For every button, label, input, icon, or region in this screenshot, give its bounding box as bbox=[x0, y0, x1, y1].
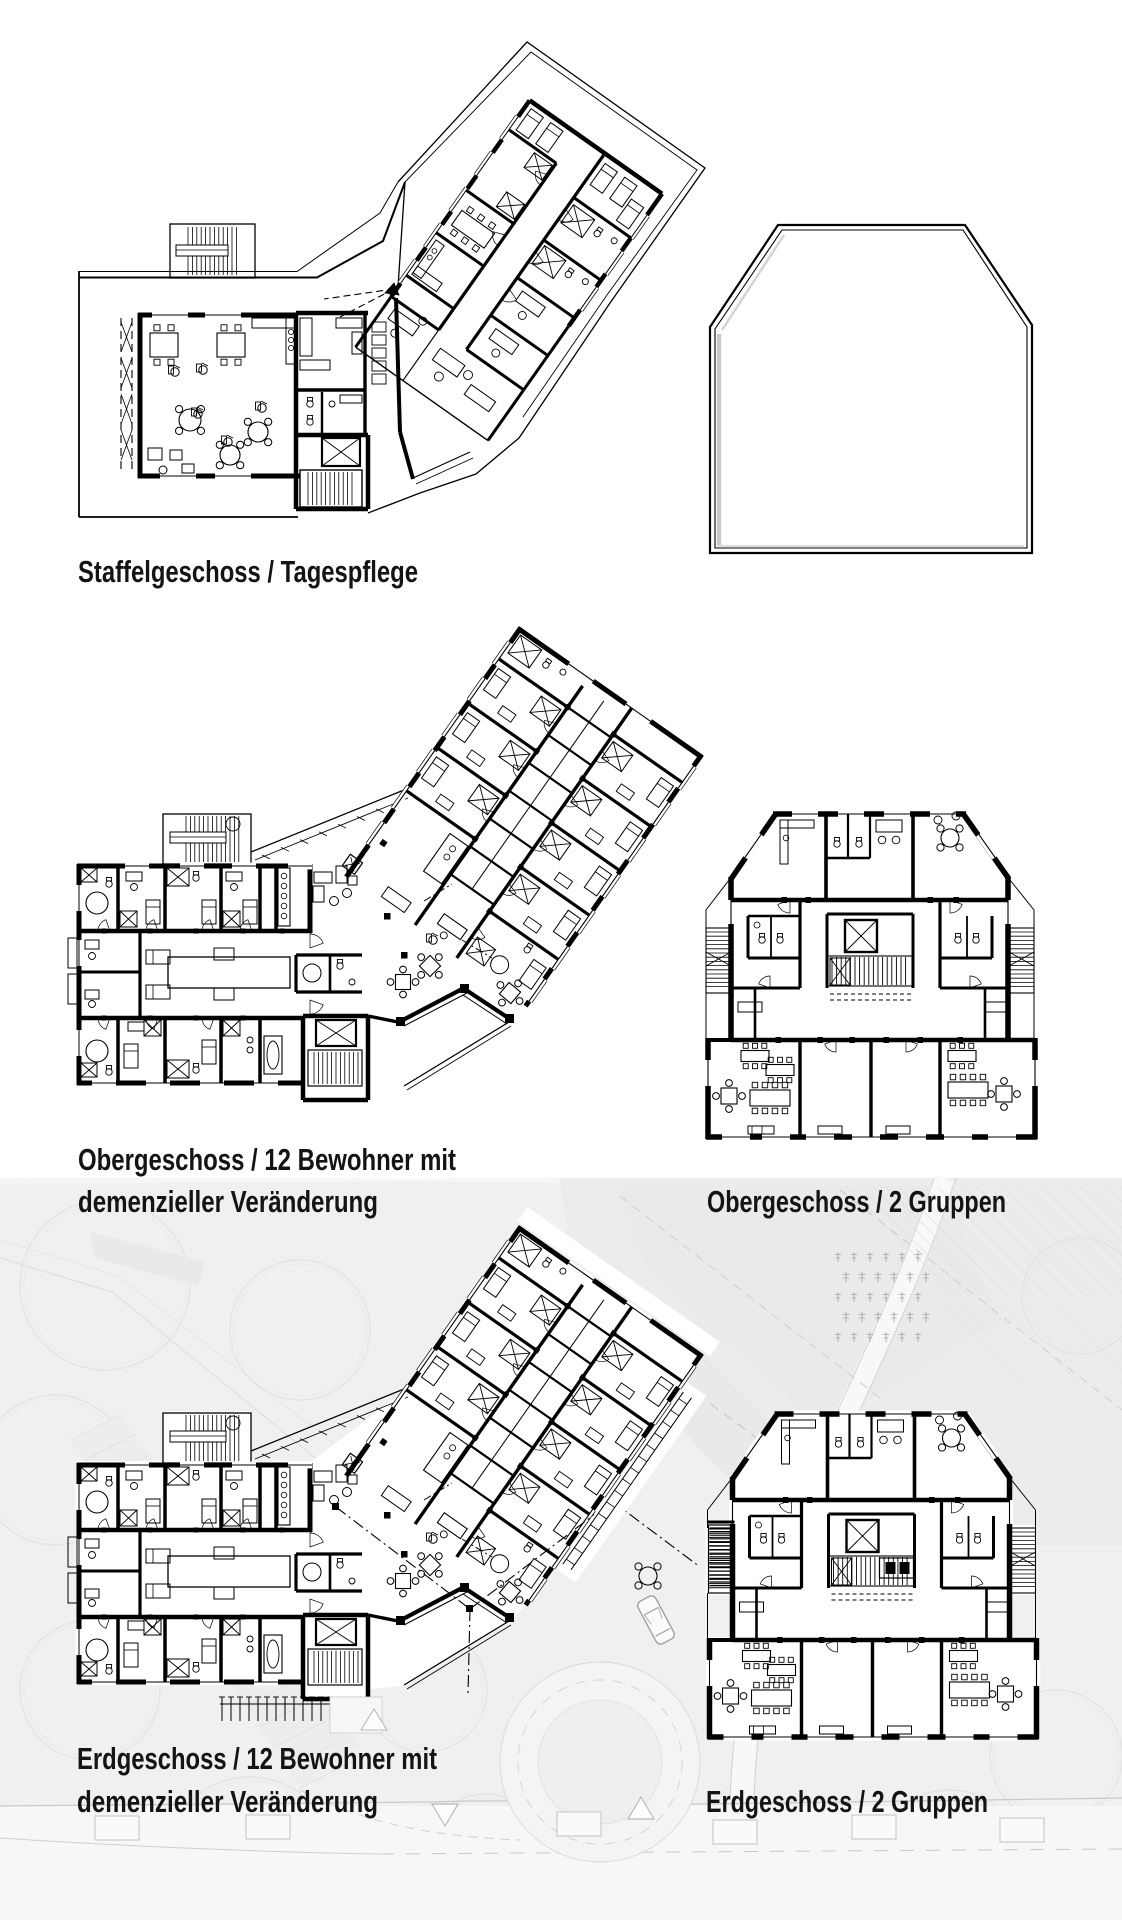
svg-text:Obergeschoss / 12 Bewohner mit: Obergeschoss / 12 Bewohner mit bbox=[78, 1142, 456, 1177]
svg-text:Erdgeschoss / 12 Bewohner mit: Erdgeschoss / 12 Bewohner mit bbox=[77, 1741, 437, 1776]
svg-text:demenzieller Veränderung: demenzieller Veränderung bbox=[78, 1184, 378, 1219]
svg-text:Obergeschoss / 2 Gruppen: Obergeschoss / 2 Gruppen bbox=[707, 1184, 1006, 1219]
svg-text:Erdgeschoss / 2 Gruppen: Erdgeschoss / 2 Gruppen bbox=[706, 1784, 988, 1819]
svg-text:demenzieller Veränderung: demenzieller Veränderung bbox=[77, 1784, 378, 1819]
svg-text:Staffelgeschoss / Tagespflege: Staffelgeschoss / Tagespflege bbox=[78, 554, 418, 589]
